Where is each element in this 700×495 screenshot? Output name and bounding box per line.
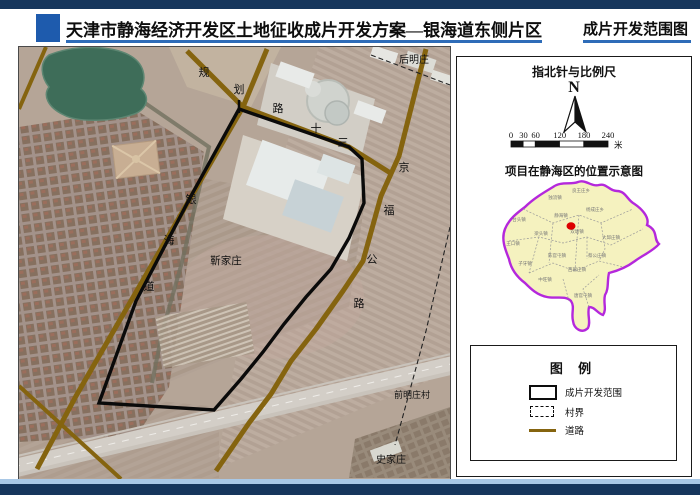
scale-bar: 0 30 60 120 180 240 米 bbox=[497, 129, 647, 155]
township-label: 中旺镇 bbox=[538, 276, 552, 283]
side-panel: 指北针与比例尺 N 0 30 60 120 180 240 米 bbox=[456, 56, 692, 477]
district-boundary bbox=[503, 181, 659, 330]
pond bbox=[42, 47, 146, 120]
project-location-dot bbox=[567, 222, 576, 230]
road-label-char: 银 bbox=[186, 192, 197, 206]
figure-title: 成片开发范围图 bbox=[583, 18, 693, 39]
district-locator-map: 独流镇 良王庄乡 台头镇 王口镇 静海镇 杨成庄乡 双塘镇 梁头镇 大邱庄镇 子… bbox=[483, 179, 665, 339]
village-boundary-swatch-icon bbox=[530, 406, 554, 417]
legend-label: 成片开发范围 bbox=[565, 385, 622, 399]
bottom-navy-bar bbox=[0, 484, 700, 495]
township-label: 梁头镇 bbox=[534, 230, 548, 237]
village-label: 后明庄 bbox=[399, 53, 429, 66]
compass-section-title: 指北针与比例尺 bbox=[457, 63, 691, 80]
legend-box: 图 例 成片开发范围 村界 道路 bbox=[470, 345, 677, 461]
township-label: 陈官屯镇 bbox=[548, 252, 566, 259]
scale-tick: 240 bbox=[602, 130, 615, 140]
township-label: 蔡公庄镇 bbox=[588, 252, 606, 259]
township-label: 大邱庄镇 bbox=[602, 234, 620, 241]
circular-basin bbox=[325, 101, 349, 125]
village-label: 史家庄 bbox=[376, 453, 406, 466]
village-label: 靳家庄 bbox=[210, 254, 242, 267]
legend-title: 图 例 bbox=[471, 358, 676, 377]
township-label: 子牙镇 bbox=[518, 260, 532, 267]
township-label: 独流镇 bbox=[548, 194, 562, 201]
scale-unit: 米 bbox=[614, 140, 623, 150]
satellite-map: 规 划 路 十 三 银 海 道 京 福 公 路 后明庄 靳家庄 前明庄村 史家庄 bbox=[18, 46, 451, 480]
title-underline bbox=[66, 40, 542, 43]
township-label: 良王庄乡 bbox=[572, 187, 590, 194]
scope-swatch-icon bbox=[529, 385, 557, 400]
road-label-char: 福 bbox=[384, 203, 395, 217]
blue-logo-square bbox=[36, 14, 60, 42]
road-label-char: 道 bbox=[144, 279, 155, 293]
township-label: 静海镇 bbox=[554, 212, 568, 219]
township-label: 唐官屯镇 bbox=[574, 292, 592, 299]
township-label: 台头镇 bbox=[512, 216, 526, 223]
scale-tick: 0 bbox=[509, 130, 513, 140]
location-section-title: 项目在静海区的位置示意图 bbox=[457, 163, 691, 179]
scale-tick: 120 bbox=[553, 130, 566, 140]
top-navy-bar bbox=[0, 0, 700, 9]
planning-map-page: 天津市静海经济开发区土地征收成片开发方案—银海道东侧片区 成片开发范围图 bbox=[0, 0, 700, 495]
scale-tick: 30 bbox=[519, 130, 528, 140]
legend-label: 村界 bbox=[565, 405, 584, 419]
road-label-char: 路 bbox=[273, 102, 284, 115]
figure-title-underline bbox=[583, 40, 691, 43]
road-label-char: 规 bbox=[199, 65, 210, 79]
road-label-char: 海 bbox=[164, 233, 175, 247]
township-label: 杨成庄乡 bbox=[586, 206, 604, 213]
page-title: 天津市静海经济开发区土地征收成片开发方案—银海道东侧片区 bbox=[66, 16, 566, 41]
road-label-char: 划 bbox=[234, 83, 245, 96]
scale-bar-segments bbox=[511, 141, 608, 147]
scale-tick-labels: 0 30 60 120 180 240 bbox=[509, 130, 615, 140]
village-label: 前明庄村 bbox=[394, 389, 430, 400]
village-park bbox=[112, 140, 160, 178]
road-label-char: 路 bbox=[354, 297, 365, 310]
road-label-char: 京 bbox=[399, 160, 410, 174]
legend-label: 道路 bbox=[565, 423, 584, 437]
road-swatch-icon bbox=[529, 429, 556, 432]
scale-tick: 180 bbox=[578, 130, 591, 140]
north-arrow-icon bbox=[552, 95, 596, 133]
satellite-map-svg: 规 划 路 十 三 银 海 道 京 福 公 路 后明庄 靳家庄 前明庄村 史家庄 bbox=[19, 47, 450, 479]
road-label-char: 十 bbox=[311, 121, 322, 135]
road-label-char: 公 bbox=[367, 254, 378, 266]
township-label: 王口镇 bbox=[506, 240, 520, 247]
township-label: 西翟庄镇 bbox=[568, 266, 586, 273]
road-label-char: 三 bbox=[338, 137, 349, 149]
scale-tick: 60 bbox=[531, 130, 540, 140]
